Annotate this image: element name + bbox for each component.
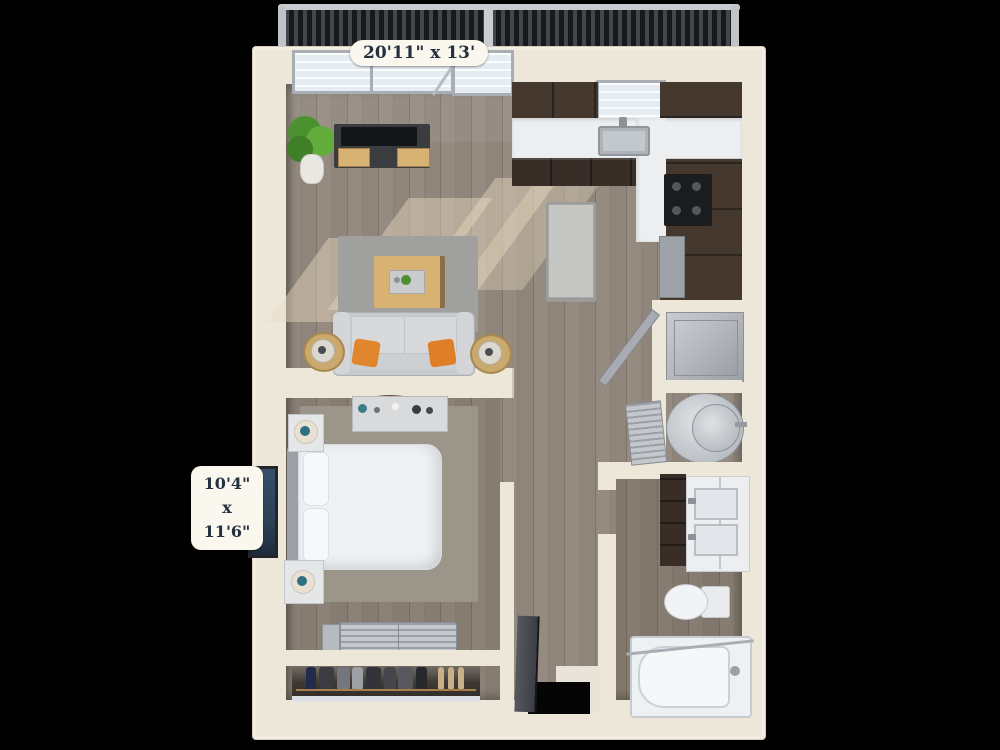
burner-icon [692, 206, 701, 215]
bedroom-dimensions-label: 10'4" x 11'6" [191, 466, 263, 550]
hanging-clothes [337, 667, 350, 689]
tray-item [394, 277, 400, 283]
sofa-armrest [456, 312, 473, 374]
bathtub-basin [638, 646, 730, 708]
entry-door-icon [514, 616, 539, 713]
sink-basin-icon [694, 488, 738, 520]
burner-icon [692, 182, 701, 191]
lower-cabinets [512, 158, 636, 186]
hanging-clothes [438, 667, 444, 689]
bathroom-wall [598, 534, 616, 700]
decor-item [412, 405, 421, 414]
cooktop-icon [664, 174, 712, 226]
closet-rod [296, 689, 476, 691]
orange-pillow-icon [351, 338, 381, 368]
faucet-icon [688, 498, 696, 504]
water-heater-icon [692, 404, 740, 452]
water-heater-pipe [735, 422, 747, 427]
entry-doorway [528, 682, 590, 714]
hanging-clothes [352, 667, 363, 689]
console-drawer [338, 148, 370, 167]
tv-icon [341, 127, 417, 146]
kitchen-island [548, 204, 594, 298]
lamp-finial [485, 348, 493, 356]
living-dimensions-text: 20'11" x 13' [363, 43, 475, 63]
decor-item [374, 407, 380, 413]
louvered-closet-door [340, 622, 399, 652]
hanging-clothes [384, 667, 396, 689]
washer-dryer-icon [674, 320, 738, 376]
faucet-icon [688, 534, 696, 540]
bedroom-length-text: 11'6" [191, 520, 263, 544]
bed-pillow [303, 452, 329, 506]
hanging-clothes [306, 667, 316, 689]
refrigerator-icon [659, 236, 685, 298]
hanging-clothes [416, 667, 427, 689]
tub-faucet-icon [730, 666, 740, 676]
toilet-icon [664, 584, 708, 620]
closet-floor [292, 696, 480, 702]
bedroom-width-text: 10'4" [191, 472, 263, 496]
kitchen-window-icon [596, 80, 666, 122]
tray-plant-icon [401, 275, 411, 285]
louvered-closet-door [398, 622, 457, 652]
floorplan-canvas: 20'11" x 13' 10'4" x 11'6" [0, 0, 1000, 750]
dimension-separator-text: x [191, 496, 263, 520]
sink-basin-icon [694, 524, 738, 556]
hallway-wall [500, 482, 514, 700]
console-drawer [397, 148, 430, 167]
closet-wall [652, 380, 742, 393]
louvered-door-icon [625, 400, 667, 465]
lamp-shade [300, 426, 310, 436]
faucet-icon [619, 117, 627, 128]
lamp-finial [318, 346, 326, 354]
hanging-clothes [458, 667, 464, 689]
decor-bowl-icon [358, 404, 367, 413]
closet-door-panel [322, 624, 340, 652]
lamp-shade [297, 576, 307, 586]
burner-icon [672, 182, 681, 191]
orange-pillow-icon [427, 338, 456, 367]
hanging-clothes [366, 667, 381, 689]
kitchen-sink-icon [598, 126, 650, 156]
vanity-cabinet [660, 474, 686, 566]
hanging-clothes [398, 667, 413, 689]
bed-pillow [303, 508, 329, 562]
hanging-clothes [448, 667, 454, 689]
closet-wall [286, 650, 500, 666]
candle-icon [392, 403, 399, 410]
planter-pot [300, 154, 324, 184]
burner-icon [672, 206, 681, 215]
decor-item [426, 407, 433, 414]
balcony-railing-slats [280, 10, 738, 50]
upper-cabinets [512, 82, 598, 122]
bathroom-wall [598, 462, 616, 490]
living-dimensions-label: 20'11" x 13' [350, 40, 488, 66]
hanging-clothes [319, 667, 334, 689]
dresser [352, 396, 448, 432]
